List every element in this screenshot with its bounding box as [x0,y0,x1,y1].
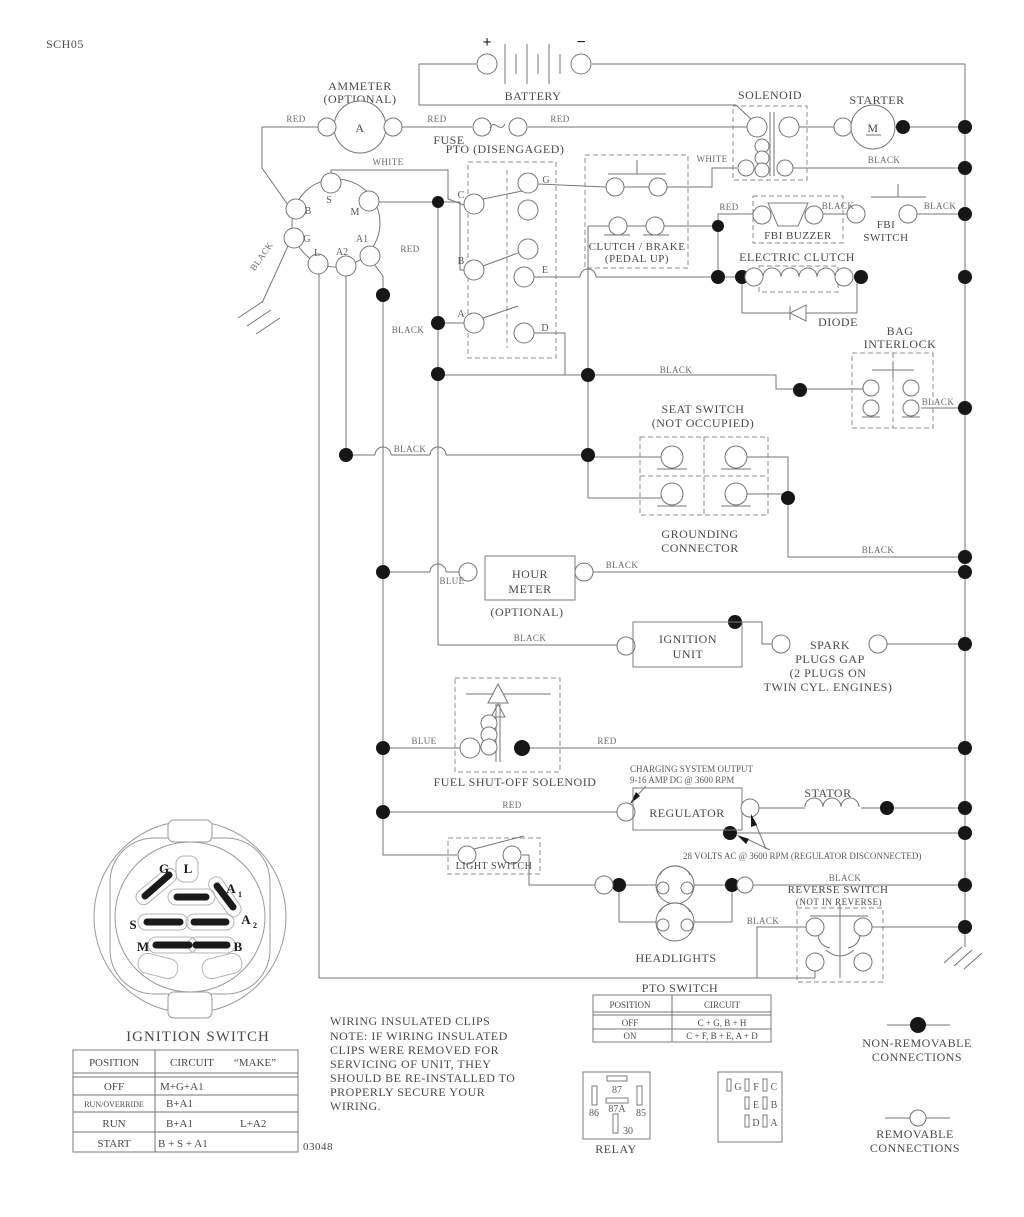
electric-clutch-component: ELECTRIC CLUTCH DIODE [739,250,858,329]
ammeter-component: AMMETER (OPTIONAL) A [318,79,402,153]
electric-clutch-label: ELECTRIC CLUTCH [739,250,855,264]
battery-component: + − BATTERY [477,34,591,103]
solenoid-component: SOLENOID [733,88,807,180]
wire-color-label: WHITE [697,154,728,164]
plug-pin-f: F [753,1082,759,1093]
spark-plugs-label-3: (2 PLUGS ON [790,666,867,680]
table-cell: START [97,1138,131,1150]
wire-color-label: BLACK [747,916,780,926]
relay-pin-87a: 87A [608,1104,626,1115]
note-line: SHOULD BE RE-INSTALLED TO [330,1071,515,1085]
wire-color-label: BLACK [924,201,957,211]
seat-switch-label-2: (NOT OCCUPIED) [652,416,754,430]
face-pin-a2-sub: 2 [253,921,257,930]
note-line: NOTE: IF WIRING INSULATED [330,1029,508,1043]
face-pin-a1-sub: 1 [238,890,242,899]
face-pin-b: B [234,939,243,954]
wire-color-label: BLACK [822,201,855,211]
plug-connector-component: G F C E B D A [718,1072,782,1142]
ignition-unit-label-2: UNIT [673,647,704,661]
wire-color-label: WHITE [373,157,404,167]
wiring-schematic: SCH05 03048 [0,0,1024,1217]
battery-label: BATTERY [505,89,562,103]
plug-pin-c: C [771,1082,778,1093]
wire-color-label: RED [550,114,569,124]
legend-removable-1: REMOVABLE [876,1127,954,1141]
wire-color-label: RED [400,244,419,254]
ignition-unit-label-1: IGNITION [659,632,717,646]
pto-table-title: PTO SWITCH [642,981,718,995]
plug-pin-e: E [753,1100,759,1111]
wire-color-label: BLACK [868,155,901,165]
table-cell: B + S + A1 [158,1138,208,1150]
seat-switch-component: SEAT SWITCH (NOT OCCUPIED) GROUNDING CON… [640,402,768,555]
table-header-circuit: CIRCUIT [170,1057,214,1069]
table-cell: L+A2 [240,1118,266,1130]
note-line: PROPERLY SECURE YOUR [330,1085,485,1099]
face-pin-m: M [137,939,149,954]
wire-color-label: BLACK [514,633,547,643]
ignition-connector: S M B G L A2 A1 [284,173,380,276]
removable-connection-icon [910,1110,926,1126]
hour-meter-component: HOUR METER (OPTIONAL) [459,556,593,619]
seat-switch-label-1: SEAT SWITCH [662,402,745,416]
wire-color-label: BLACK [862,545,895,555]
table-cell: OFF [622,1018,639,1028]
table-cell: B+A1 [166,1098,193,1110]
wire-color-label: BLUE [411,736,436,746]
wire-color-label: RED [286,114,305,124]
pto-table-header-position: POSITION [609,1000,651,1010]
wire-color-labels: RED RED RED WHITE WHITE BLACK RED BLACK … [248,114,956,926]
spark-plugs-label-1: SPARK [810,638,850,652]
battery-minus-sign: − [576,34,585,51]
legend-non-removable-1: NON-REMOVABLE [862,1036,972,1050]
note-line: CLIPS WERE REMOVED FOR [330,1043,499,1057]
fuel-solenoid-label: FUEL SHUT-OFF SOLENOID [434,775,597,789]
light-switch-label: LIGHT SWITCH [456,861,533,872]
wire-color-label: BLACK [394,444,427,454]
plug-pin-d: D [752,1118,759,1129]
face-pin-a1: A [226,881,236,896]
ignition-switch-title: IGNITION SWITCH [126,1029,270,1045]
face-pin-a2: A [241,912,251,927]
ignition-switch-face: G L A 1 A 2 S M B IGNITION SWITCH [94,820,286,1045]
wire-color-label: BLACK [829,873,862,883]
connector-pin-s: S [326,195,332,206]
bag-interlock-label-1: BAG [887,324,914,338]
clutch-brake-component: CLUTCH / BRAKE (PEDAL UP) [585,155,688,268]
pto-pin-e: E [542,265,548,276]
connector-pin-g: G [303,234,310,245]
table-cell: C + G, B + H [698,1018,747,1028]
table-cell: M+G+A1 [160,1081,204,1093]
table-cell: ON [624,1031,637,1041]
spark-plugs-label-2: PLUGS GAP [795,652,865,666]
relay-label: RELAY [595,1142,636,1156]
pto-table-header-circuit: CIRCUIT [704,1000,741,1010]
wire-color-label: BLUE [439,576,464,586]
plug-pin-b: B [771,1100,778,1111]
connector-pin-a2: A2 [336,247,348,258]
reverse-switch-label-1: REVERSE SWITCH [788,884,889,896]
grounding-connector-label-1: GROUNDING [661,527,738,541]
bag-interlock-component: BAG INTERLOCK [852,324,936,428]
pto-pin-d: D [541,323,548,334]
relay-pin-85: 85 [636,1108,646,1119]
fbi-switch-component: FBI SWITCH [847,184,926,244]
connector-pin-a1: A1 [356,234,368,245]
charging-note-2: 9-16 AMP DC @ 3600 RPM [630,775,734,785]
reverse-switch-component: REVERSE SWITCH (NOT IN REVERSE) [788,884,889,982]
wire-color-label: RED [502,800,521,810]
wire-color-label: BLACK [922,397,955,407]
charging-note-1: CHARGING SYSTEM OUTPUT [630,764,754,774]
starter-motor-symbol: M [867,121,878,135]
note-line: SERVICING OF UNIT, THEY [330,1057,491,1071]
hour-meter-label-1: HOUR [512,567,548,581]
note-line: WIRING. [330,1099,381,1113]
schematic-page: SCH05 03048 [0,0,1024,1217]
wiring-note: WIRING INSULATED CLIPS NOTE: IF WIRING I… [330,1014,515,1113]
wire-color-label: BLACK [248,240,275,272]
connections-legend: NON-REMOVABLE CONNECTIONS REMOVABLE CONN… [862,1017,972,1155]
wire-color-label: RED [719,202,738,212]
fuel-solenoid-component: FUEL SHUT-OFF SOLENOID [434,678,597,789]
ignition-switch-table: POSITION CIRCUIT “MAKE” OFF M+G+A1 RUN/O… [73,1050,298,1152]
wire-color-label: BLACK [392,325,425,335]
solenoid-label: SOLENOID [738,88,802,102]
ignition-unit-component: IGNITION UNIT SPARK PLUGS GAP (2 PLUGS O… [617,622,892,694]
plug-pin-a: A [770,1118,778,1129]
diode-label: DIODE [818,315,858,329]
table-cell: RUN [102,1118,125,1130]
spark-plugs-label-4: TWIN CYL. ENGINES) [764,680,893,694]
table-cell: C + F, B + E, A + D [686,1031,758,1041]
schematic-code: SCH05 [46,37,84,51]
wires [238,64,982,978]
table-header-position: POSITION [89,1057,139,1069]
pto-pin-a: A [457,309,465,320]
connector-pin-m: M [351,207,360,218]
face-pin-g: G [159,861,169,876]
face-pin-l: L [184,861,193,876]
headlights-label: HEADLIGHTS [636,951,717,965]
pto-switch-component: C B A G E D [457,162,606,358]
face-pin-s: S [129,917,136,932]
pto-pin-b: B [458,256,465,267]
note-line: WIRING INSULATED CLIPS [330,1014,490,1028]
table-cell: RUN/OVERRIDE [84,1100,144,1109]
wire-color-label: BLACK [606,560,639,570]
legend-non-removable-2: CONNECTIONS [872,1050,962,1064]
table-header-make: “MAKE” [234,1057,276,1069]
pto-pin-c: C [458,190,465,201]
document-number: 03048 [303,1141,333,1153]
wire-color-label: RED [427,114,446,124]
plug-pin-g: G [734,1082,741,1093]
connector-pin-l: L [314,248,320,259]
ammeter-label: AMMETER [328,79,392,93]
clutch-brake-label-1: CLUTCH / BRAKE [589,241,686,253]
clutch-brake-label-2: (PEDAL UP) [605,253,669,265]
relay-pin-86: 86 [589,1108,599,1119]
wire-color-label: RED [597,736,616,746]
pto-pin-g: G [542,175,549,186]
fbi-buzzer-label: FBI BUZZER [764,230,832,242]
pto-disengaged-label: PTO (DISENGAGED) [446,142,565,156]
volts-note: 28 VOLTS AC @ 3600 RPM (REGULATOR DISCON… [683,851,921,861]
ammeter-symbol: A [355,121,364,135]
hour-meter-label-2: METER [508,582,551,596]
pto-switch-table: PTO SWITCH POSITION CIRCUIT OFF C + G, B… [593,981,771,1042]
regulator-component: CHARGING SYSTEM OUTPUT 9-16 AMP DC @ 360… [617,764,921,861]
table-cell: B+A1 [166,1118,193,1130]
legend-removable-2: CONNECTIONS [870,1141,960,1155]
reverse-switch-label-2: (NOT IN REVERSE) [796,897,882,907]
relay-pin-87: 87 [612,1085,622,1096]
fuse-component: FUSE PTO (DISENGAGED) [433,118,564,156]
relay-component: 87 87A 86 85 30 RELAY [583,1072,650,1156]
fbi-switch-label-1: FBI [877,219,896,231]
wire-color-label: BLACK [660,365,693,375]
connector-pin-b: B [305,206,312,217]
battery-plus-sign: + [482,34,491,51]
grounding-connector-label-2: CONNECTOR [661,541,739,555]
hour-meter-optional-label: (OPTIONAL) [491,605,564,619]
fbi-switch-label-2: SWITCH [863,232,908,244]
regulator-label: REGULATOR [649,806,725,820]
table-cell: OFF [104,1081,124,1093]
relay-pin-30: 30 [623,1126,633,1137]
non-removable-connection-icon [910,1017,926,1033]
bag-interlock-label-2: INTERLOCK [864,337,937,351]
starter-component: STARTER M [834,93,905,149]
